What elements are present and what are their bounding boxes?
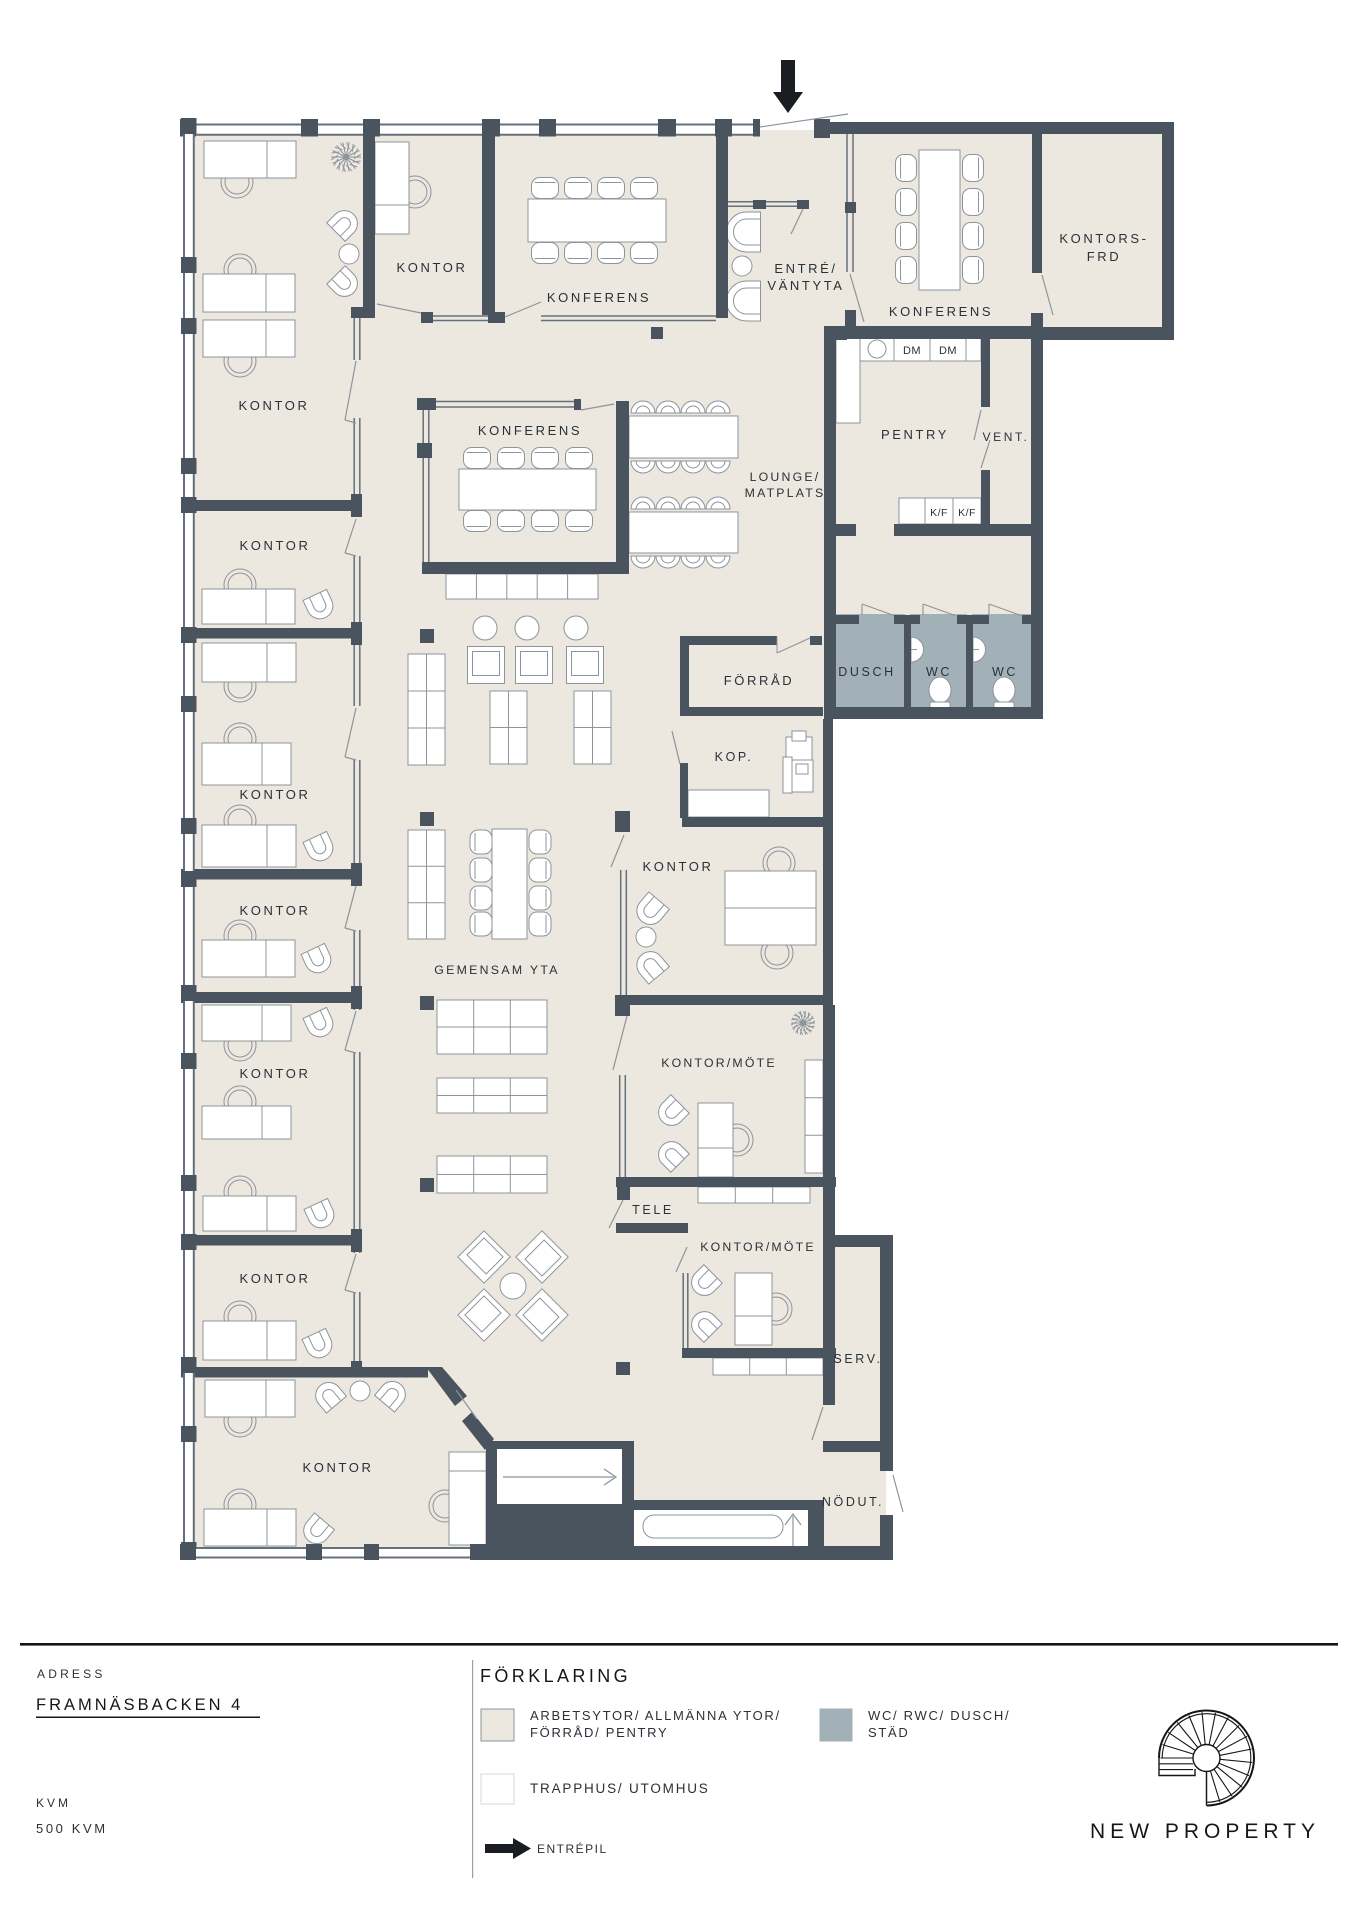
svg-text:KONTOR/MÖTE: KONTOR/MÖTE — [700, 1240, 816, 1254]
svg-text:KONFERENS: KONFERENS — [478, 423, 582, 438]
svg-text:ARBETSYTOR/ ALLMÄNNA YTOR/: ARBETSYTOR/ ALLMÄNNA YTOR/ — [530, 1708, 781, 1723]
svg-text:K/F: K/F — [958, 507, 976, 519]
svg-text:KONTOR: KONTOR — [239, 398, 310, 413]
svg-text:WC/ RWC/ DUSCH/: WC/ RWC/ DUSCH/ — [868, 1708, 1010, 1723]
svg-text:KONTOR: KONTOR — [240, 903, 311, 918]
svg-text:VENT.: VENT. — [982, 430, 1029, 444]
svg-text:PENTRY: PENTRY — [881, 427, 949, 442]
svg-text:FÖRRÅD/ PENTRY: FÖRRÅD/ PENTRY — [530, 1725, 668, 1740]
svg-text:LOUNGE/: LOUNGE/ — [750, 470, 821, 484]
svg-text:KONTOR: KONTOR — [240, 787, 311, 802]
svg-text:KONTORS-: KONTORS- — [1059, 231, 1148, 246]
svg-text:DM: DM — [939, 345, 957, 357]
svg-text:NÖDUT.: NÖDUT. — [822, 1495, 884, 1509]
svg-text:FRD: FRD — [1087, 249, 1122, 264]
svg-text:ENTRÉPIL: ENTRÉPIL — [537, 1841, 608, 1856]
svg-text:KOP.: KOP. — [715, 750, 754, 764]
svg-text:ENTRÉ/: ENTRÉ/ — [774, 261, 837, 276]
svg-text:KONTOR/MÖTE: KONTOR/MÖTE — [661, 1056, 777, 1070]
svg-text:KONTOR: KONTOR — [240, 1271, 311, 1286]
svg-text:STÄD: STÄD — [868, 1725, 909, 1740]
svg-text:VÄNTYTA: VÄNTYTA — [767, 278, 844, 293]
svg-text:ADRESS: ADRESS — [37, 1667, 106, 1681]
svg-text:NEW PROPERTY: NEW PROPERTY — [1090, 1820, 1320, 1843]
svg-text:DUSCH: DUSCH — [838, 665, 895, 679]
svg-text:KONFERENS: KONFERENS — [889, 304, 993, 319]
svg-text:KONFERENS: KONFERENS — [547, 290, 651, 305]
svg-text:KONTOR: KONTOR — [240, 538, 311, 553]
svg-text:TELE: TELE — [632, 1203, 674, 1217]
svg-text:WC: WC — [926, 665, 952, 679]
svg-text:SERV.: SERV. — [833, 1352, 882, 1366]
svg-text:FÖRRÅD: FÖRRÅD — [724, 673, 795, 688]
svg-text:KONTOR: KONTOR — [643, 859, 714, 874]
svg-text:500 KVM: 500 KVM — [36, 1821, 108, 1836]
svg-text:KONTOR: KONTOR — [397, 260, 468, 275]
svg-text:KONTOR: KONTOR — [240, 1066, 311, 1081]
svg-text:FRAMNÄSBACKEN 4: FRAMNÄSBACKEN 4 — [36, 1696, 243, 1714]
svg-text:TRAPPHUS/ UTOMHUS: TRAPPHUS/ UTOMHUS — [530, 1781, 710, 1796]
svg-text:MATPLATS: MATPLATS — [745, 486, 826, 500]
svg-text:FÖRKLARING: FÖRKLARING — [480, 1666, 631, 1686]
svg-text:KONTOR: KONTOR — [303, 1460, 374, 1475]
svg-text:KVM: KVM — [36, 1796, 71, 1810]
svg-text:GEMENSAM YTA: GEMENSAM YTA — [434, 963, 560, 977]
svg-text:DM: DM — [903, 345, 921, 357]
svg-text:WC: WC — [992, 665, 1018, 679]
svg-text:K/F: K/F — [930, 507, 948, 519]
